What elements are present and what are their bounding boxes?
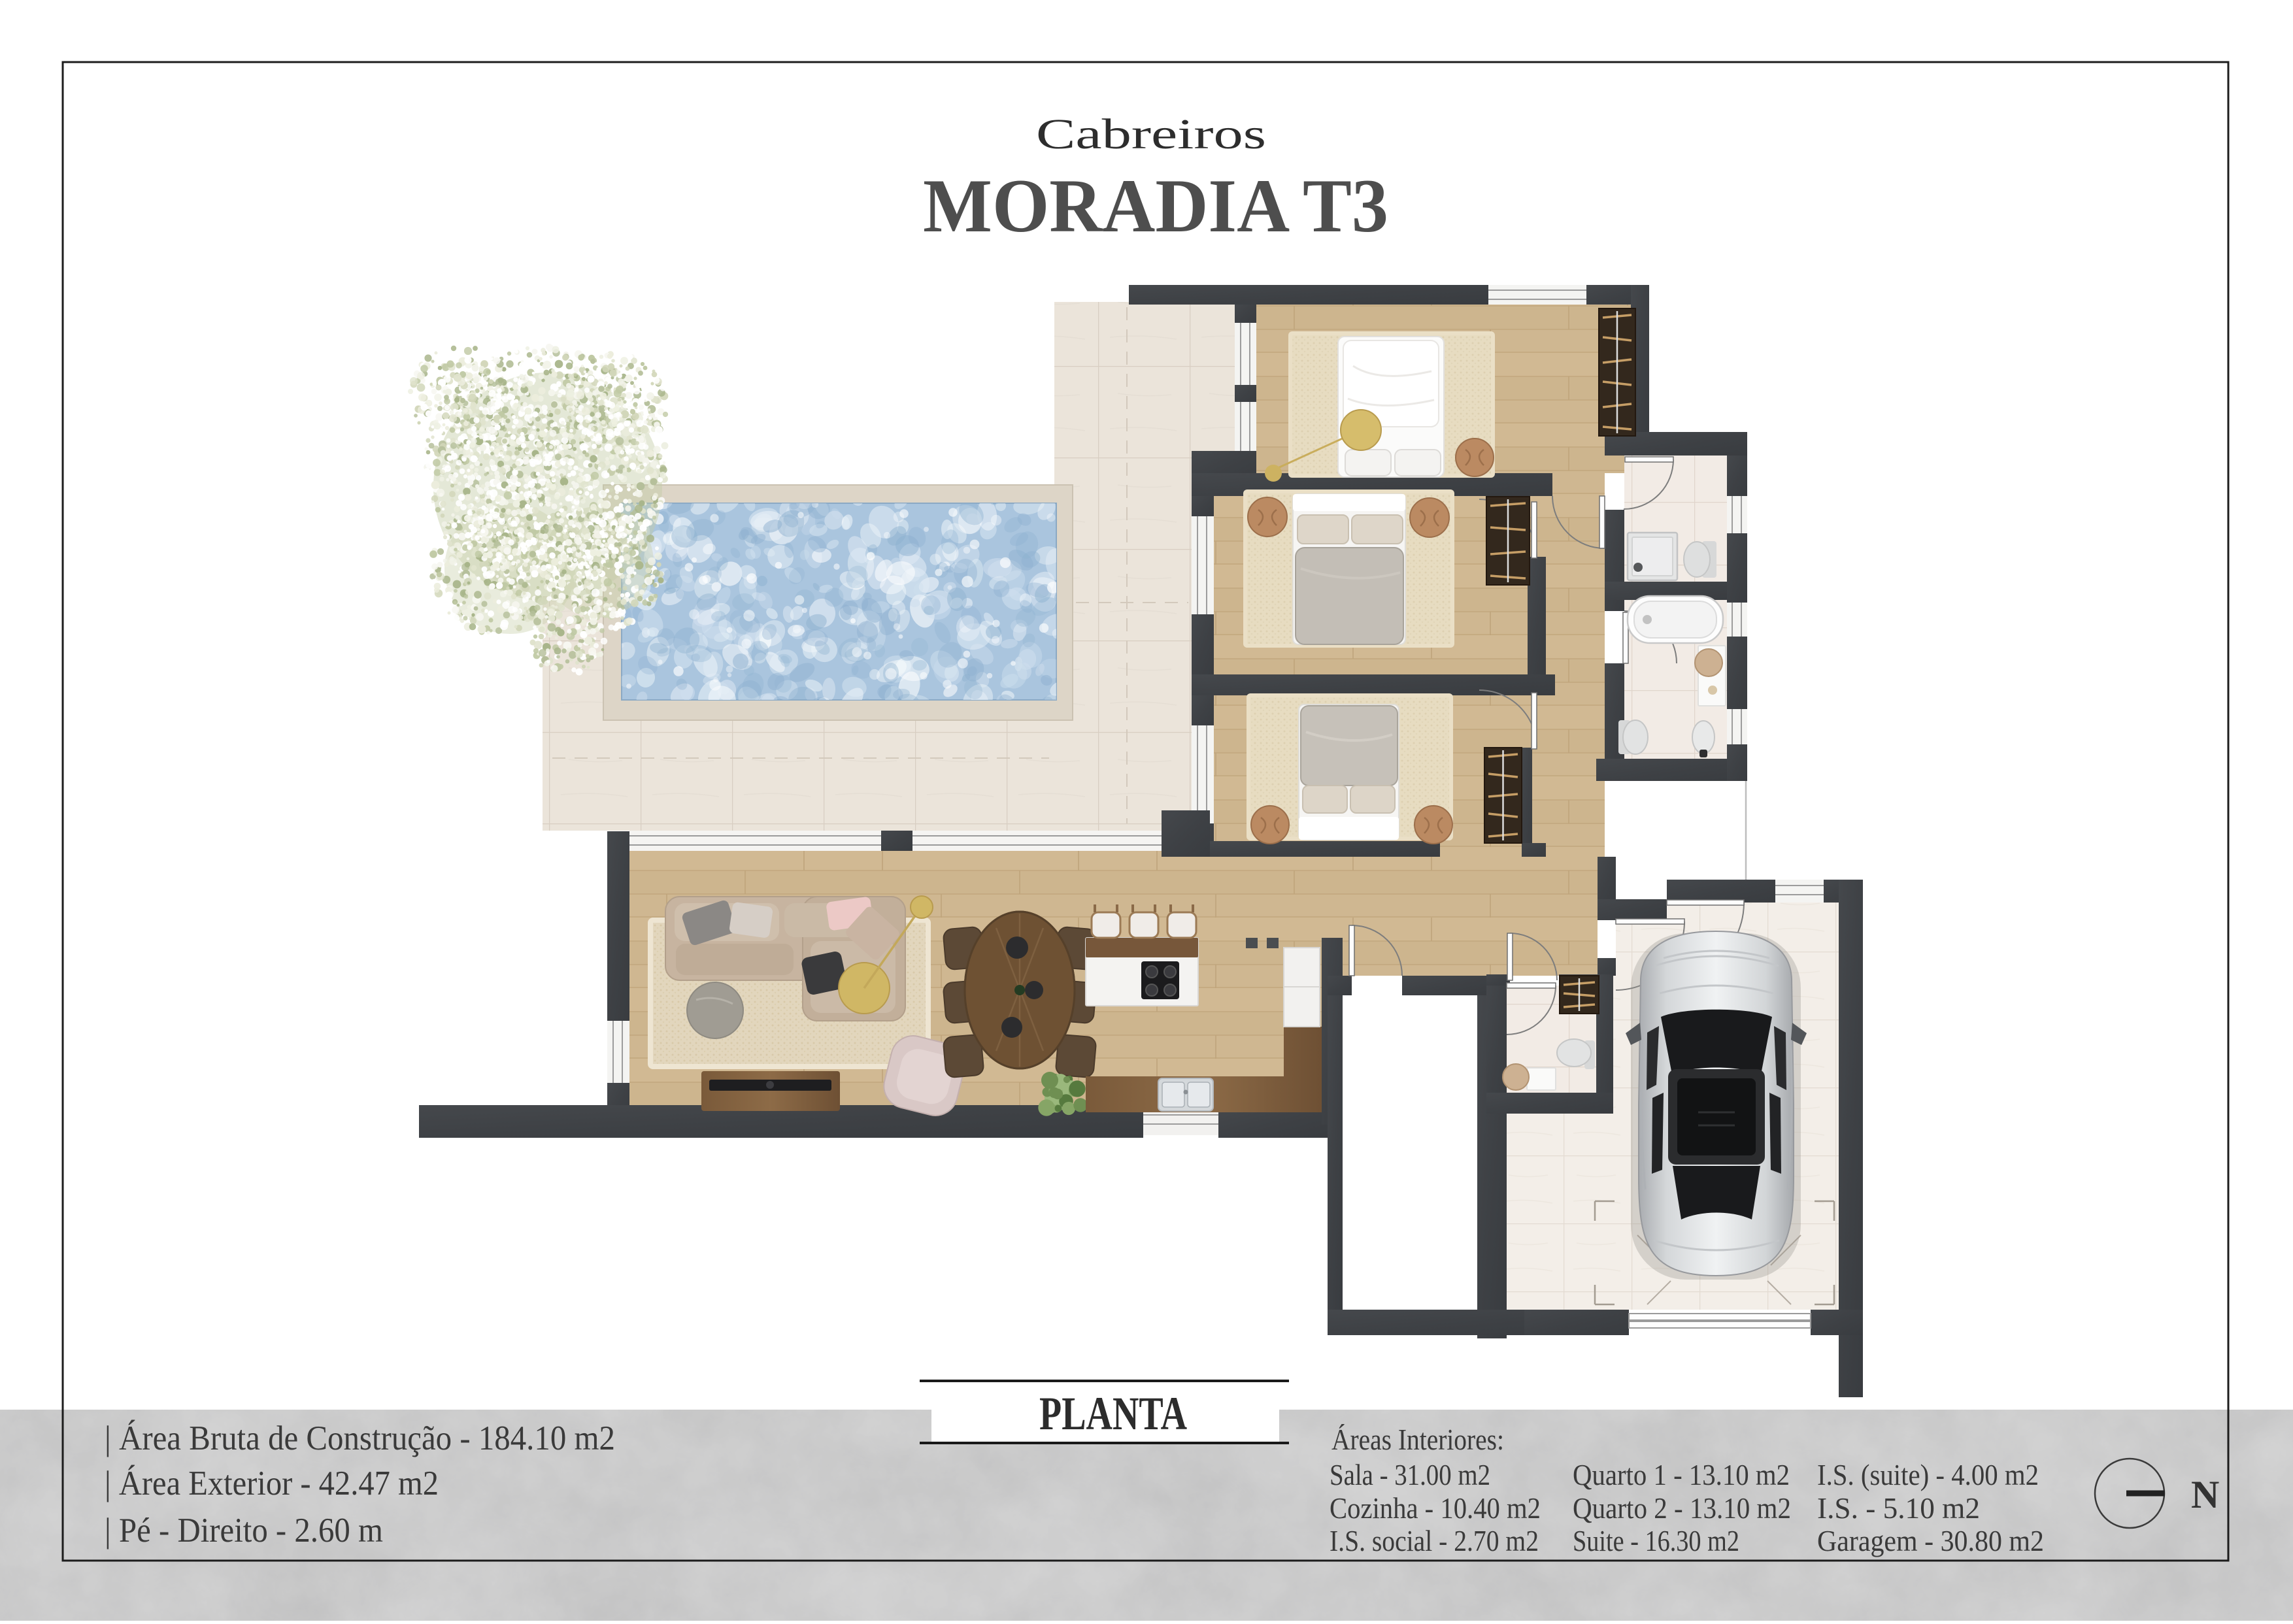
svg-text:Áreas Interiores:: Áreas Interiores: — [1331, 1423, 1504, 1456]
svg-text:PLANTA: PLANTA — [1039, 1387, 1187, 1440]
svg-text:Cozinha - 10.40 m2: Cozinha - 10.40 m2 — [1330, 1491, 1541, 1525]
svg-text:Garagem - 30.80 m2: Garagem - 30.80 m2 — [1817, 1524, 2044, 1557]
svg-text:MORADIA T3: MORADIA T3 — [923, 164, 1388, 248]
svg-text:| Área Bruta de Construção - 1: | Área Bruta de Construção - 184.10 m2 — [105, 1419, 615, 1457]
svg-text:Suite - 16.30 m2: Suite - 16.30 m2 — [1573, 1524, 1739, 1557]
svg-text:Cabreiros: Cabreiros — [1036, 110, 1266, 158]
svg-text:I.S. social - 2.70 m2: I.S. social - 2.70 m2 — [1330, 1524, 1539, 1557]
svg-text:Sala - 31.00 m2: Sala - 31.00 m2 — [1330, 1458, 1490, 1491]
svg-text:Quarto 2 - 13.10 m2: Quarto 2 - 13.10 m2 — [1573, 1491, 1791, 1525]
svg-text:I.S. - 5.10 m2: I.S. - 5.10 m2 — [1817, 1491, 1980, 1525]
svg-text:| Pé - Direito - 2.60 m: | Pé - Direito - 2.60 m — [105, 1512, 383, 1549]
svg-text:| Área Exterior - 42.47 m2: | Área Exterior - 42.47 m2 — [105, 1465, 439, 1502]
svg-text:Quarto 1 - 13.10 m2: Quarto 1 - 13.10 m2 — [1573, 1458, 1790, 1491]
svg-text:I.S. (suite) - 4.00 m2: I.S. (suite) - 4.00 m2 — [1817, 1458, 2039, 1491]
svg-text:N: N — [2191, 1473, 2219, 1516]
